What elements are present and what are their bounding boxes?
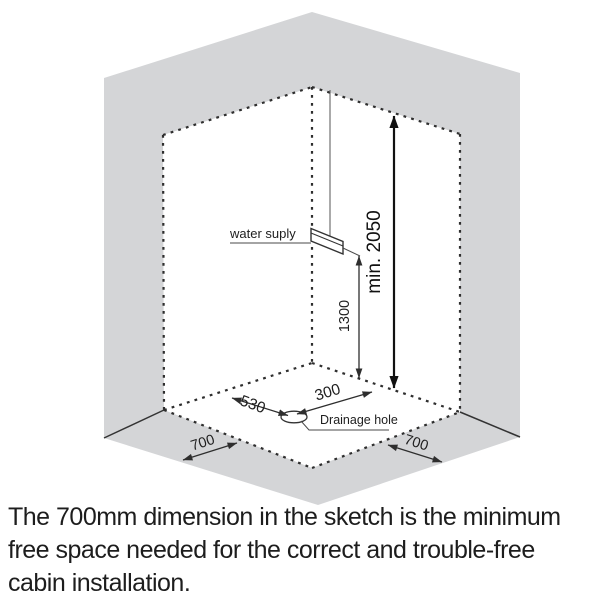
water-supply-label: water suply	[229, 226, 296, 241]
caption-text: The 700mm dimension in the sketch is the…	[8, 501, 598, 600]
dim-min-height-label: min. 2050	[364, 210, 385, 293]
installation-clearance-sketch: water suply Drainage hole min. 2050 1300…	[0, 0, 600, 600]
drainage-hole	[281, 411, 307, 423]
drainage-hole-label: Drainage hole	[320, 413, 398, 427]
dim-1300-label: 1300	[337, 300, 353, 332]
corner-left-dashed	[163, 135, 164, 410]
